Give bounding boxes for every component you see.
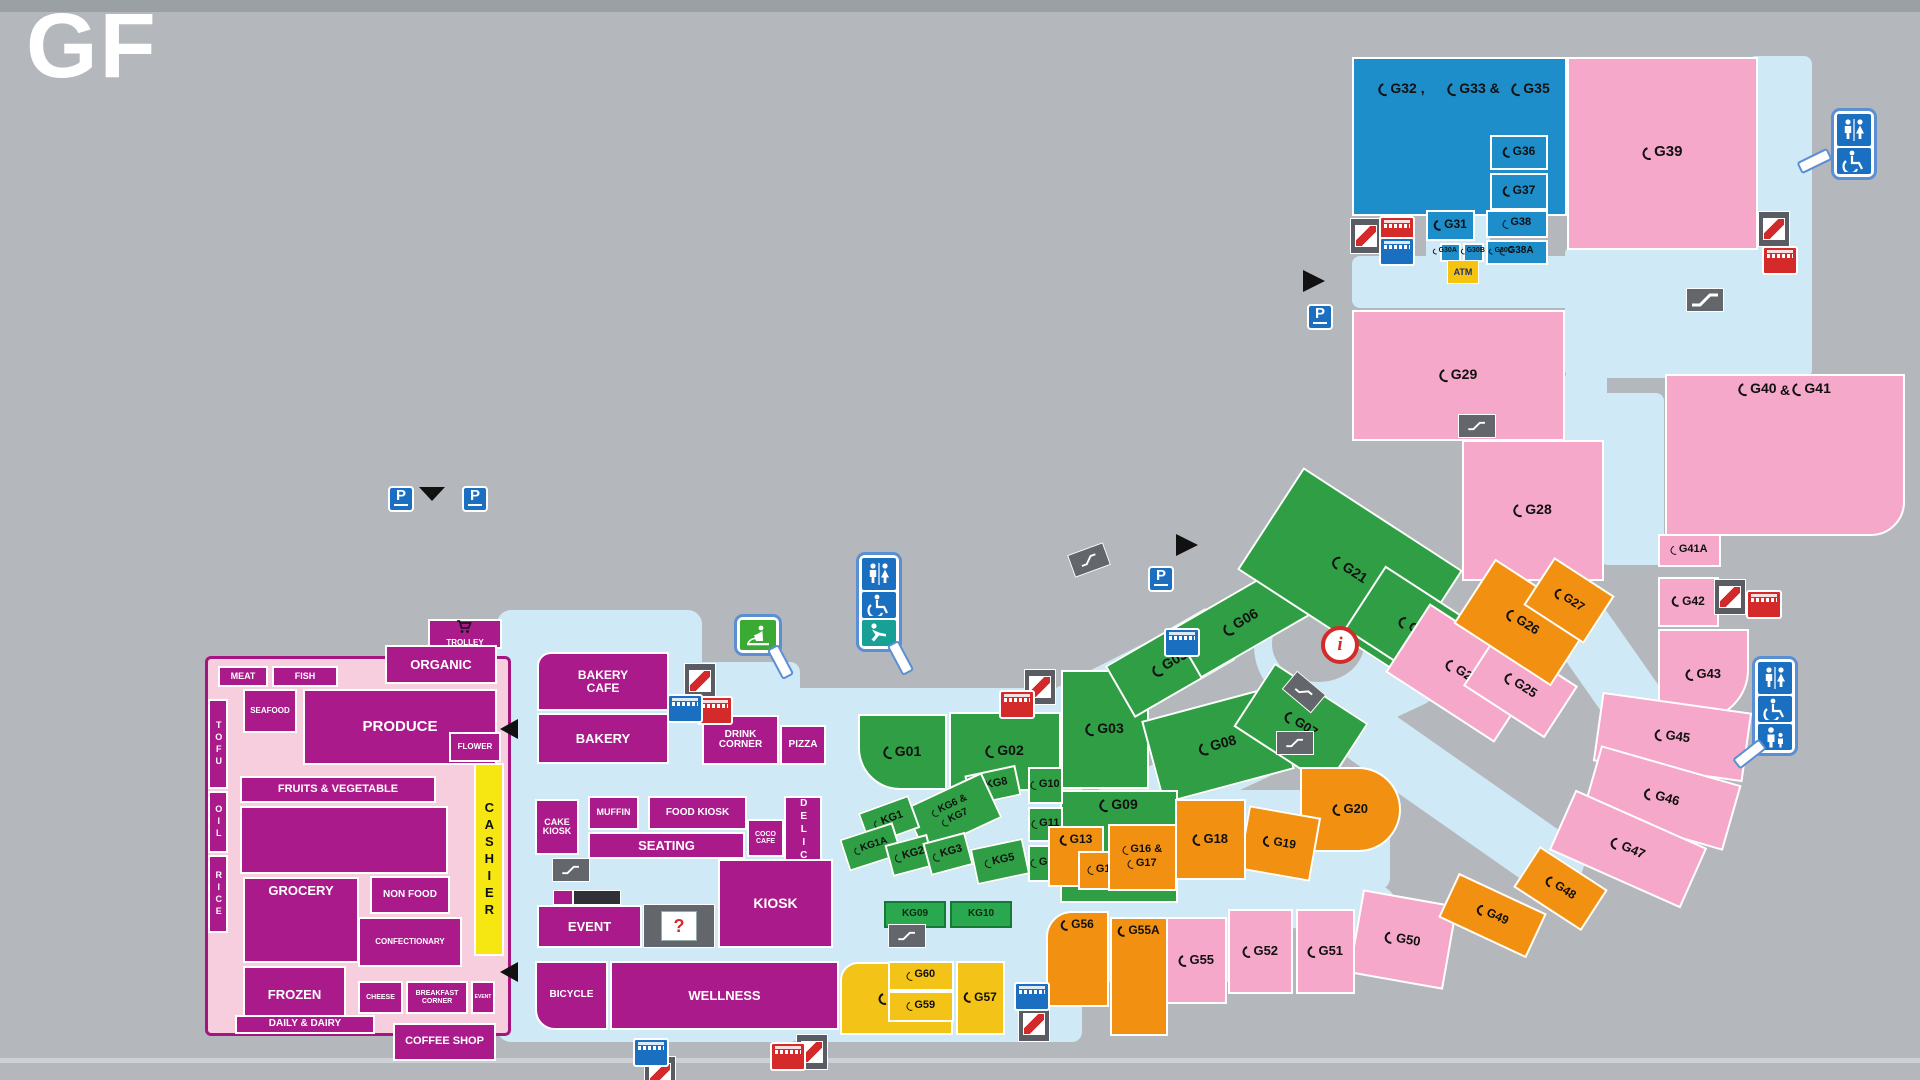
store-coco-cafe[interactable]: COCOCAFE — [747, 819, 784, 857]
unit-label: G38 — [1502, 217, 1533, 231]
swoosh-mark — [1791, 381, 1808, 398]
unit-label: G06 — [1219, 605, 1263, 640]
swoosh-mark — [1116, 923, 1131, 938]
escalator-icon[interactable] — [1067, 542, 1111, 578]
store-G16-G17[interactable]: G16 &G17 — [1108, 824, 1177, 891]
corridor-walkway — [1565, 373, 1607, 443]
unit-label: CAKEKIOSK — [542, 818, 573, 837]
swoosh-mark — [932, 851, 943, 862]
store-G28[interactable]: G28 — [1462, 440, 1604, 581]
swoosh-mark — [1432, 218, 1447, 233]
unit-label: SEAFOOD — [249, 707, 290, 715]
map-canvas: MEATFISHTROLLEYORGANICSEAFOODPRODUCEFLOW… — [0, 0, 1920, 1080]
store-G38[interactable]: G38 — [1486, 210, 1548, 238]
unit-label: G28 — [1513, 502, 1554, 518]
swoosh-mark — [1510, 81, 1527, 98]
escalator-icon[interactable] — [1276, 731, 1314, 755]
corridor-walkway — [1600, 393, 1664, 565]
unit-label: ORGANIC — [409, 658, 473, 672]
store-cashier[interactable]: CASHIER — [474, 763, 504, 956]
unit-label: G39 — [1641, 144, 1684, 162]
unit-label: G46 — [1642, 785, 1683, 810]
lift-icon[interactable] — [1164, 628, 1200, 657]
unit-label: G51 — [1306, 944, 1344, 959]
callout-pointer — [887, 640, 914, 676]
unit-label: G10 — [1030, 779, 1061, 793]
unit-label: G57 — [963, 991, 999, 1006]
swoosh-mark — [1152, 663, 1165, 676]
swoosh-mark — [1670, 594, 1685, 609]
store-G52[interactable]: G52 — [1228, 909, 1293, 994]
direction-arrow-icon[interactable] — [1176, 534, 1198, 556]
swoosh-mark — [894, 853, 905, 864]
store-G55[interactable]: G55 — [1166, 917, 1227, 1004]
atm-icon[interactable]: ATM — [1447, 260, 1479, 284]
unit-label: G03 — [1085, 721, 1126, 737]
unit-label: MEAT — [230, 672, 257, 681]
swoosh-mark — [1488, 247, 1497, 256]
swoosh-mark — [1505, 608, 1521, 624]
store-cheese[interactable]: CHEESE — [358, 981, 403, 1014]
unit-label: G36 — [1501, 145, 1537, 160]
lift-icon[interactable] — [667, 694, 703, 723]
unit-label: BAKERY — [574, 732, 632, 746]
store-cake-kiosk[interactable]: CAKEKIOSK — [535, 799, 579, 855]
swoosh-mark — [1383, 929, 1400, 946]
swoosh-mark — [1460, 247, 1469, 256]
unit-label: G31 — [1433, 218, 1469, 233]
unit-label: BREAKFASTCORNER — [415, 990, 459, 1005]
swoosh-mark — [1086, 864, 1098, 876]
unit-label: G13 — [1058, 833, 1094, 848]
information-icon[interactable]: i — [1321, 626, 1359, 664]
unit-label: PRODUCE — [361, 719, 440, 735]
escalator-icon[interactable] — [1350, 218, 1382, 254]
unit-label: BICYCLE — [548, 990, 594, 1001]
unit-label: G01 — [882, 744, 923, 760]
swoosh-mark — [1642, 786, 1659, 803]
swoosh-mark — [1057, 832, 1072, 847]
unit-label: G56 — [1060, 918, 1096, 933]
toilets-icon — [862, 558, 896, 590]
swoosh-mark — [1512, 502, 1529, 519]
unit-label: KG3 — [930, 843, 965, 865]
toilets-icon — [1837, 114, 1871, 146]
unit-label: DRINKCORNER — [718, 730, 764, 751]
unit-label: KG5 — [983, 851, 1018, 871]
swoosh-mark — [1502, 671, 1518, 687]
unit-label: COFFEE SHOP — [404, 1036, 485, 1048]
unit-label: DAILY & DAIRY — [268, 1019, 343, 1030]
swoosh-mark — [962, 990, 977, 1005]
unit-label: G40&G41 — [1737, 381, 1832, 397]
store-G55A[interactable]: G55A — [1110, 917, 1168, 1036]
store-bicycle[interactable]: BICYCLE — [535, 961, 608, 1030]
escalator-glyph — [1355, 225, 1377, 247]
parking-icon[interactable]: P — [1307, 304, 1333, 330]
unit-label: G02 — [985, 743, 1026, 759]
escalator-icon[interactable] — [1686, 288, 1724, 312]
store-confectionary[interactable]: CONFECTIONARY — [358, 917, 462, 967]
toilet-callout[interactable] — [1831, 108, 1877, 180]
swoosh-mark — [1609, 836, 1626, 853]
store-bakery-cafe[interactable]: BAKERYCAFE — [537, 652, 669, 711]
service-mark[interactable] — [573, 890, 621, 905]
unit-label: FROZEN — [266, 988, 323, 1002]
unit-label: CHEESE — [365, 994, 395, 1001]
unit-label: CONFECTIONARY — [374, 938, 445, 946]
unit-label-G33[interactable]: G33 & — [1438, 74, 1510, 104]
unit-label-G35[interactable]: G35 — [1504, 74, 1558, 104]
unit-label: FRUITS & VEGETABLE — [277, 784, 400, 796]
unit-label: G52 — [1241, 944, 1279, 959]
unit-label: G08 — [1196, 732, 1240, 758]
unit-label: G18 — [1191, 832, 1229, 847]
swoosh-mark — [932, 809, 941, 818]
unit-label: EVENT — [566, 920, 612, 934]
store-coffee-shop[interactable]: COFFEE SHOP — [393, 1023, 496, 1061]
swoosh-mark — [1098, 797, 1115, 814]
store-pizza[interactable]: PIZZA — [780, 725, 826, 765]
accessible-toilet-icon — [862, 592, 896, 618]
swoosh-mark — [1544, 875, 1560, 891]
direction-arrow-icon[interactable] — [419, 487, 445, 501]
unit-label: G19 — [1261, 833, 1299, 854]
escalator-glyph — [1763, 218, 1785, 240]
swoosh-mark — [1444, 658, 1460, 674]
unit-label: PIZZA — [787, 740, 818, 751]
lift-icon[interactable] — [1014, 982, 1050, 1011]
swoosh-mark — [1305, 943, 1321, 959]
escalator-icon[interactable] — [1018, 1006, 1050, 1042]
swoosh-mark — [1652, 727, 1669, 744]
store-aeon-supermarket[interactable] — [240, 806, 448, 874]
swoosh-mark — [1500, 145, 1515, 160]
direction-arrow-icon[interactable] — [1303, 270, 1325, 292]
store-flower[interactable]: FLOWER — [449, 732, 501, 762]
store-G39[interactable]: G39 — [1567, 57, 1758, 250]
swoosh-mark — [1500, 184, 1515, 199]
store-muffin[interactable]: MUFFIN — [588, 796, 639, 830]
store-non-food[interactable]: NON FOOD — [370, 876, 450, 914]
swoosh-mark — [1176, 952, 1192, 968]
unit-label: G60 — [906, 969, 937, 983]
unit-label: G35 — [1511, 81, 1552, 97]
swoosh-mark — [1446, 81, 1463, 98]
unit-label: G55 — [1177, 953, 1215, 968]
swoosh-mark — [1059, 917, 1074, 932]
unit-label: G50 — [1383, 929, 1423, 951]
information-question-icon[interactable]: ? — [643, 904, 715, 948]
escalator-icon[interactable] — [888, 924, 926, 948]
lift-icon[interactable] — [633, 1038, 669, 1067]
unit-label: G21 — [1328, 552, 1371, 588]
baby-care-icon — [862, 620, 896, 646]
unit-label: G20 — [1331, 802, 1369, 817]
store-G37[interactable]: G37 — [1490, 173, 1548, 210]
swoosh-mark — [942, 818, 951, 827]
unit-label: G27 — [1550, 585, 1588, 617]
store-G51[interactable]: G51 — [1296, 909, 1355, 994]
swoosh-mark — [1397, 615, 1413, 631]
store-G19[interactable]: G19 — [1238, 805, 1321, 882]
swoosh-mark — [1223, 622, 1236, 635]
store-G41A[interactable]: G41A — [1658, 534, 1721, 567]
store-event-corner[interactable]: EVENT — [471, 981, 495, 1014]
unit-label: KG10 — [967, 909, 996, 920]
escalator-glyph — [1719, 586, 1741, 608]
swoosh-mark — [1669, 544, 1681, 556]
swoosh-mark — [1501, 218, 1513, 230]
store-G18[interactable]: G18 — [1175, 799, 1246, 880]
unit-label: G45 — [1653, 727, 1693, 748]
mall-floor-map: GF MEATFISHTROLLEYORGANICSEAFOODPRODUCEF… — [0, 0, 1920, 1080]
accessible-toilet-icon — [1758, 696, 1792, 722]
direction-arrow-icon[interactable] — [500, 962, 518, 982]
swoosh-mark — [984, 743, 1001, 760]
store-seafood[interactable]: SEAFOOD — [243, 689, 297, 733]
lift-icon[interactable] — [1746, 590, 1782, 619]
swoosh-mark — [1126, 858, 1138, 870]
parking-icon[interactable]: P — [388, 486, 414, 512]
store-kiosk[interactable]: KIOSK — [718, 859, 833, 948]
store-daily-dairy[interactable]: DAILY & DAIRY — [235, 1015, 375, 1034]
unit-label: G29 — [1438, 367, 1479, 383]
prayer-room-callout[interactable] — [734, 614, 782, 656]
unit-label: G09 — [1099, 797, 1140, 813]
unit-label: G30B — [1460, 247, 1485, 256]
escalator-icon[interactable] — [552, 858, 590, 882]
lift-icon[interactable] — [999, 690, 1035, 719]
store-G56[interactable]: G56 — [1046, 911, 1109, 1007]
swoosh-mark — [905, 970, 917, 982]
unit-label: G41A — [1670, 544, 1709, 558]
unit-label: RICE — [213, 870, 222, 918]
unit-label: G37 — [1501, 184, 1537, 199]
unit-label: FISH — [294, 672, 317, 681]
accessible-toilet-icon — [1837, 148, 1871, 174]
store-G31[interactable]: G31 — [1426, 210, 1475, 241]
service-mark[interactable] — [553, 890, 573, 905]
store-meat[interactable]: MEAT — [218, 666, 268, 687]
store-breakfast-corner[interactable]: BREAKFASTCORNER — [406, 981, 468, 1014]
store-organic[interactable]: ORGANIC — [385, 645, 497, 684]
unit-label: KG09 — [901, 909, 930, 920]
lift-icon[interactable] — [1379, 237, 1415, 266]
swoosh-mark — [1640, 144, 1658, 162]
swoosh-mark — [1121, 844, 1133, 856]
store-G36[interactable]: G36 — [1490, 135, 1548, 170]
swoosh-mark — [1198, 741, 1213, 756]
swoosh-mark — [1084, 721, 1101, 738]
swoosh-mark — [1683, 666, 1699, 682]
escalator-icon[interactable] — [1758, 211, 1790, 247]
lift-icon[interactable] — [1762, 246, 1798, 275]
unit-label: GROCERY — [267, 884, 335, 898]
toilet-callout[interactable] — [1752, 656, 1798, 756]
swoosh-mark — [1029, 857, 1041, 869]
unit-label: KG2 — [892, 845, 927, 867]
store-G10[interactable]: G10 — [1028, 767, 1063, 804]
parking-icon[interactable]: P — [1148, 566, 1174, 592]
swoosh-mark — [881, 744, 898, 761]
swoosh-mark — [1330, 801, 1346, 817]
unit-label: G16 &G17 — [1122, 844, 1164, 871]
store-G60[interactable]: G60 — [888, 961, 954, 991]
unit-label: G49 — [1473, 901, 1511, 929]
unit-label: FOOD KIOSK — [665, 808, 731, 819]
unit-label-G32[interactable]: G32 , — [1366, 74, 1438, 104]
store-G59[interactable]: G59 — [888, 991, 954, 1022]
swoosh-mark — [1377, 81, 1394, 98]
swoosh-mark — [1261, 833, 1277, 849]
unit-label: SEATING — [637, 839, 697, 853]
swoosh-mark — [1240, 943, 1256, 959]
swoosh-mark — [984, 858, 995, 869]
swoosh-mark — [1432, 247, 1441, 256]
store-KG10[interactable]: KG10 — [950, 901, 1012, 928]
unit-label: BAKERYCAFE — [576, 669, 629, 694]
swoosh-mark — [1330, 554, 1347, 571]
unit-label: OIL — [213, 804, 222, 840]
unit-label: FLOWER — [457, 743, 494, 751]
unit-label-G30C[interactable]: G30C — [1484, 244, 1518, 260]
store-G01[interactable]: G01 — [858, 714, 947, 790]
store-G40-G41[interactable]: G40&G41 — [1665, 374, 1905, 536]
store-rice[interactable]: RICE — [208, 855, 228, 933]
swoosh-mark — [1029, 779, 1041, 791]
swoosh-mark — [1030, 818, 1042, 830]
store-bakery[interactable]: BAKERY — [537, 713, 669, 764]
unit-label: KG6 &KG7 — [929, 793, 976, 833]
prayer-room-icon — [740, 620, 776, 650]
unit-label: KIOSK — [752, 896, 800, 911]
lift-icon[interactable] — [770, 1042, 806, 1071]
toilets-icon — [1758, 662, 1792, 694]
unit-label: G55A — [1117, 924, 1161, 939]
unit-label: COCOCAFE — [754, 831, 777, 846]
store-tofu[interactable]: TOFU — [208, 699, 228, 789]
unit-label: G33 & — [1447, 81, 1502, 97]
toilet-callout[interactable] — [856, 552, 902, 652]
swoosh-mark — [1736, 381, 1753, 398]
trolley-icon — [456, 620, 472, 639]
store-fruits-vegetable[interactable]: FRUITS & VEGETABLE — [240, 776, 436, 803]
store-grocery[interactable]: GROCERY — [243, 877, 359, 963]
unit-label: TOFU — [213, 720, 222, 768]
unit-label: G59 — [906, 1000, 937, 1014]
store-event[interactable]: EVENT — [537, 905, 642, 948]
unit-label: G30A — [1432, 247, 1457, 256]
unit-label: EVENT — [474, 995, 492, 1000]
store-fish[interactable]: FISH — [272, 666, 338, 687]
escalator-glyph — [689, 670, 711, 692]
swoosh-mark — [1190, 831, 1206, 847]
unit-label: G42 — [1671, 595, 1707, 610]
unit-label: G30C — [1488, 247, 1513, 256]
swoosh-mark — [1552, 587, 1568, 603]
swoosh-mark — [1283, 710, 1299, 726]
parking-icon[interactable]: P — [462, 486, 488, 512]
escalator-icon[interactable] — [1714, 579, 1746, 615]
swoosh-mark — [853, 846, 862, 855]
unit-label: G48 — [1542, 873, 1580, 905]
unit-label: WELLNESS — [687, 989, 762, 1003]
escalator-glyph — [1023, 1013, 1045, 1035]
swoosh-mark — [1475, 903, 1491, 919]
store-oil[interactable]: OIL — [208, 791, 228, 853]
swoosh-mark — [905, 1000, 917, 1012]
unit-label: G32 , — [1378, 81, 1427, 97]
unit-label: G47 — [1607, 834, 1648, 864]
unit-label: MUFFIN — [595, 808, 631, 817]
unit-label: NON FOOD — [382, 890, 438, 901]
store-G50[interactable]: G50 — [1348, 889, 1457, 989]
store-wellness[interactable]: WELLNESS — [610, 961, 839, 1030]
unit-label: CASHIER — [482, 800, 496, 919]
store-food-kiosk[interactable]: FOOD KIOSK — [648, 796, 747, 830]
direction-arrow-icon[interactable] — [500, 719, 518, 739]
store-G42[interactable]: G42 — [1658, 577, 1719, 627]
swoosh-mark — [1437, 367, 1454, 384]
store-seating[interactable]: SEATING — [588, 832, 745, 859]
escalator-icon[interactable] — [1458, 414, 1496, 438]
unit-label: G43 — [1684, 667, 1722, 682]
store-G57[interactable]: G57 — [956, 961, 1005, 1035]
